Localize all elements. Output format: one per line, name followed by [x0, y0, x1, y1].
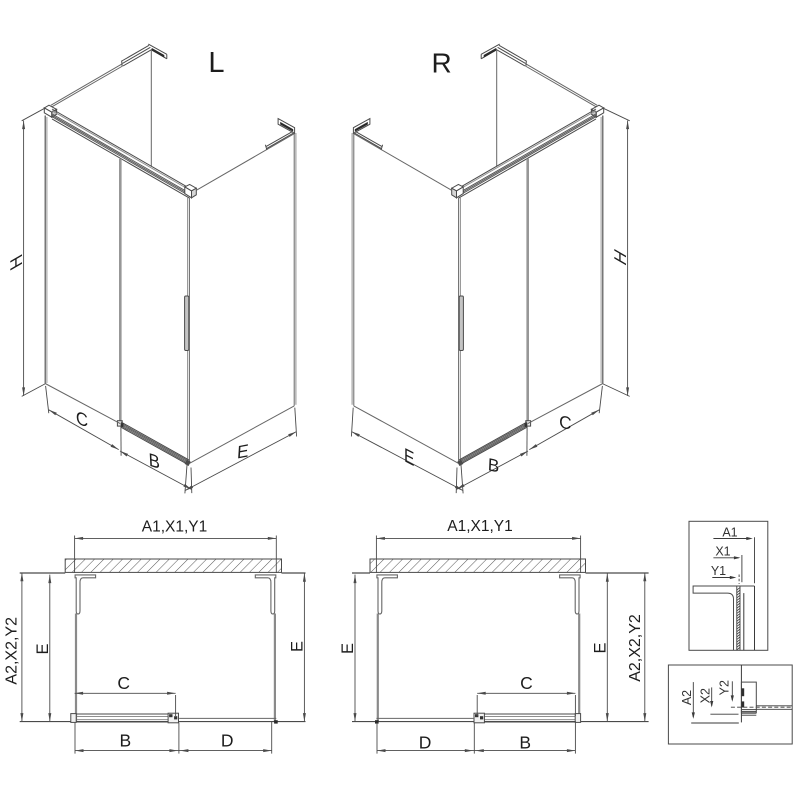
svg-text:E: E: [236, 440, 249, 462]
svg-text:Y1: Y1: [711, 564, 726, 578]
svg-text:A2: A2: [680, 690, 694, 705]
svg-text:X2: X2: [699, 688, 713, 703]
svg-text:D: D: [419, 733, 432, 753]
svg-text:X1: X1: [715, 545, 730, 559]
svg-text:D: D: [221, 731, 234, 751]
svg-text:C: C: [117, 673, 130, 693]
svg-text:B: B: [487, 454, 499, 477]
svg-text:B: B: [120, 731, 132, 751]
svg-text:A1,X1,Y1: A1,X1,Y1: [142, 519, 208, 536]
svg-text:E: E: [339, 643, 357, 654]
svg-text:A2,X2,Y2: A2,X2,Y2: [627, 614, 644, 682]
svg-text:E: E: [34, 643, 52, 654]
svg-text:B: B: [148, 449, 160, 473]
svg-text:Y2: Y2: [718, 680, 732, 695]
svg-text:A2,X2,Y2: A2,X2,Y2: [4, 617, 21, 685]
svg-text:C: C: [559, 411, 573, 434]
svg-text:C: C: [75, 407, 88, 431]
svg-text:E: E: [592, 642, 610, 653]
svg-text:A1,X1,Y1: A1,X1,Y1: [447, 518, 513, 535]
svg-text:R: R: [431, 48, 451, 79]
svg-text:C: C: [520, 673, 533, 693]
svg-text:B: B: [519, 733, 531, 753]
svg-text:L: L: [208, 47, 224, 79]
svg-text:E: E: [289, 641, 307, 652]
svg-text:A1: A1: [722, 525, 737, 539]
